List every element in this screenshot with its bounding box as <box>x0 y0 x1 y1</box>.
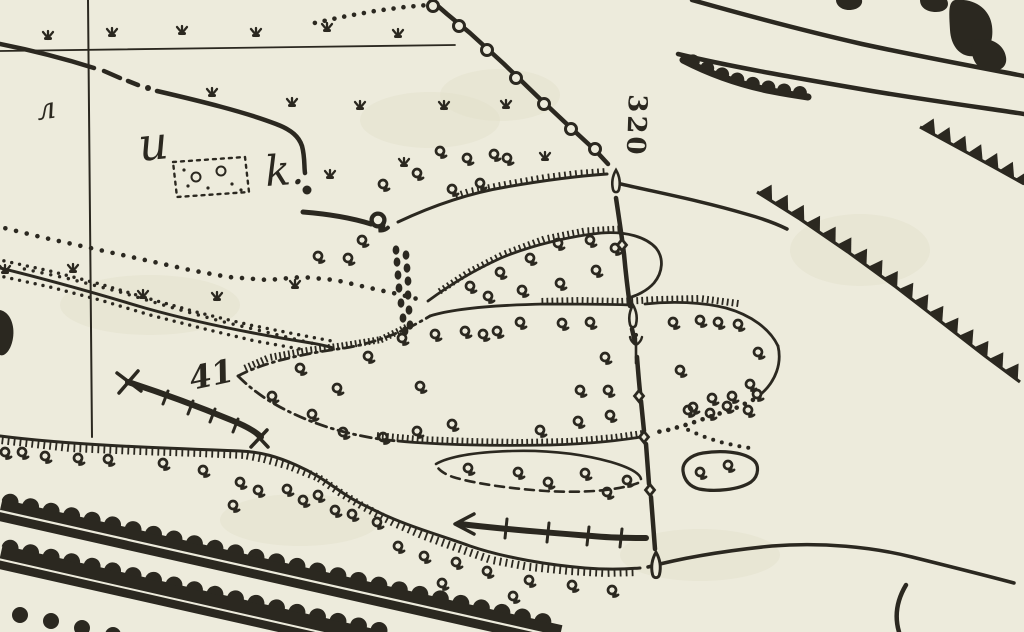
hill-crest <box>398 174 607 222</box>
cliff-teeth-ne <box>920 115 1024 189</box>
biglens-lobe-top <box>645 302 778 346</box>
building-blob-1 <box>920 0 948 12</box>
map-labels: л и k. 320 41 <box>34 91 652 398</box>
power-v3 <box>637 357 640 392</box>
label-elevation-41: 41 <box>186 351 237 397</box>
power-v5 <box>646 444 649 484</box>
biglens-top-east <box>430 304 630 316</box>
road-to-bush <box>303 212 371 224</box>
wt2-tick2 <box>547 523 549 542</box>
big-bush-symbol <box>372 214 388 231</box>
wt2-tick3 <box>587 527 589 545</box>
wt2-tick4 <box>620 529 622 547</box>
blob-chain-path <box>393 245 414 335</box>
road-upper-left <box>0 44 94 68</box>
edge-blob-west <box>0 310 13 355</box>
garden-dot <box>186 184 189 187</box>
embankment-dot <box>74 620 90 632</box>
road-dash-2 <box>128 81 138 85</box>
dotted-top-arc <box>313 3 426 25</box>
label-letter-k: k. <box>263 144 305 196</box>
garden-dot <box>230 182 233 185</box>
cliff-teeth-main <box>757 180 1024 382</box>
garden-dot <box>182 168 185 171</box>
label-letter-i: и <box>136 115 171 172</box>
garden-dot <box>206 186 209 189</box>
road-dot <box>145 85 151 91</box>
power-v4 <box>641 401 644 431</box>
embankment-dot <box>12 607 28 623</box>
small-oval <box>683 452 758 491</box>
building-blob-4 <box>836 0 862 10</box>
windthrow-2 <box>460 524 646 538</box>
biglens-bottom-west <box>238 376 398 441</box>
wt2-tick1 <box>505 519 507 538</box>
dotted-rect <box>173 157 249 197</box>
embankment-dot <box>43 613 59 629</box>
road-ne-2 <box>678 54 1024 114</box>
garden-dot <box>239 188 242 191</box>
oval-dots <box>686 428 750 450</box>
road-dash-1 <box>104 71 120 78</box>
map-canvas: л и k. 320 41 <box>0 0 1024 632</box>
paren-stroke <box>897 585 906 632</box>
label-elevation-320: 320 <box>620 94 652 158</box>
grid-horizontal <box>0 45 455 51</box>
label-letter-l: л <box>34 91 58 128</box>
biglens-lobe-end <box>761 346 779 394</box>
map-scan-page: л и k. 320 41 <box>0 0 1024 632</box>
garden-circle <box>192 173 201 182</box>
embankment-dot <box>105 627 121 632</box>
garden-circle <box>217 167 226 176</box>
